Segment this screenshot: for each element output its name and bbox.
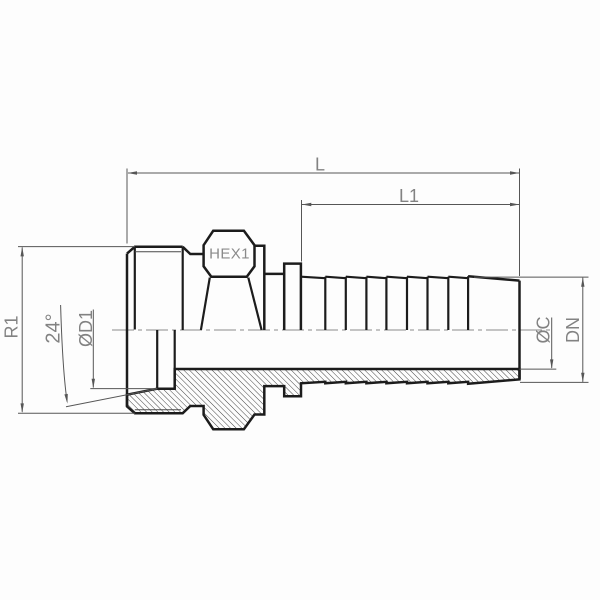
svg-text:R1: R1	[2, 315, 22, 338]
svg-text:ØC: ØC	[534, 316, 554, 343]
svg-text:HEX1: HEX1	[209, 246, 250, 263]
svg-text:L1: L1	[399, 186, 419, 206]
svg-text:L: L	[315, 155, 325, 175]
svg-text:DN: DN	[563, 317, 583, 343]
